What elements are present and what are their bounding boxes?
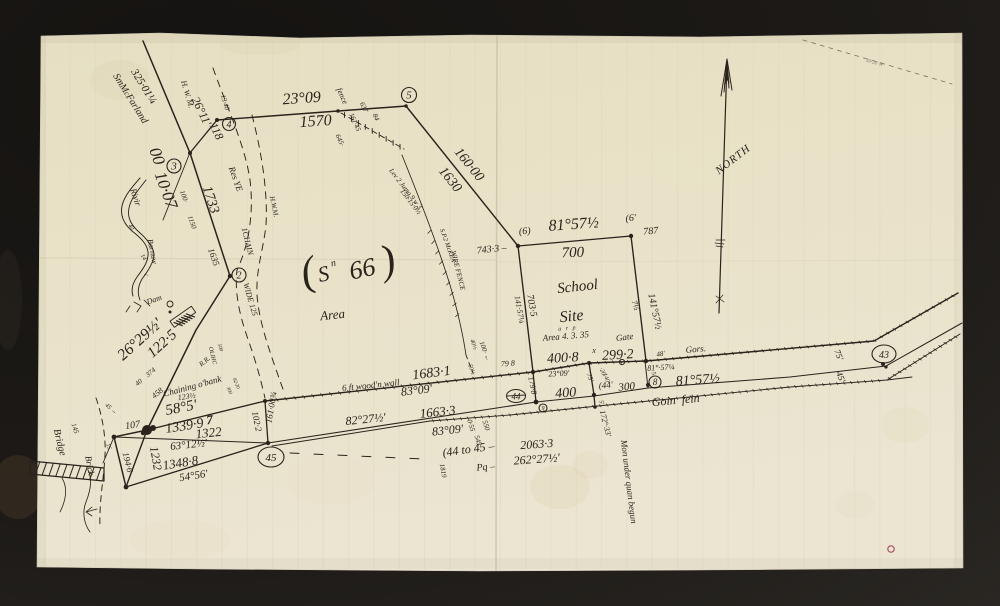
svg-text:400: 400 bbox=[555, 385, 577, 401]
svg-text:8: 8 bbox=[653, 377, 658, 387]
svg-text:45: 45 bbox=[266, 452, 278, 464]
svg-text:(6': (6' bbox=[625, 212, 637, 224]
svg-text:81°57½: 81°57½ bbox=[548, 214, 599, 234]
svg-text:81°·57¼: 81°·57¼ bbox=[647, 362, 675, 372]
svg-text:23°09': 23°09' bbox=[548, 368, 570, 378]
svg-text:79 8: 79 8 bbox=[501, 359, 516, 369]
svg-text:23°09: 23°09 bbox=[282, 89, 321, 109]
svg-text:43: 43 bbox=[879, 350, 889, 361]
svg-text:9: 9 bbox=[542, 406, 545, 412]
svg-text:5: 5 bbox=[406, 90, 412, 102]
svg-text:1570: 1570 bbox=[299, 112, 332, 131]
svg-text:107: 107 bbox=[124, 419, 141, 432]
svg-text:44: 44 bbox=[512, 392, 522, 402]
svg-text:2: 2 bbox=[237, 270, 242, 281]
svg-text:Site: Site bbox=[559, 307, 585, 326]
svg-text:3: 3 bbox=[170, 161, 177, 173]
svg-text:299·2: 299·2 bbox=[602, 347, 634, 364]
svg-text:(6): (6) bbox=[518, 225, 531, 237]
svg-text:700: 700 bbox=[561, 245, 585, 262]
svg-text:4: 4 bbox=[227, 119, 232, 130]
svg-text:787: 787 bbox=[643, 225, 660, 237]
svg-text:x: x bbox=[591, 346, 596, 355]
svg-text:81°57½: 81°57½ bbox=[675, 371, 721, 389]
svg-text:←: ← bbox=[142, 269, 150, 278]
svg-text:Gors.: Gors. bbox=[685, 343, 706, 355]
svg-text:Pq –: Pq – bbox=[475, 461, 496, 474]
svg-text:2063·3: 2063·3 bbox=[520, 436, 554, 452]
svg-text:300: 300 bbox=[617, 380, 636, 394]
svg-text:400·8: 400·8 bbox=[547, 350, 579, 367]
svg-text:Area: Area bbox=[318, 306, 346, 324]
